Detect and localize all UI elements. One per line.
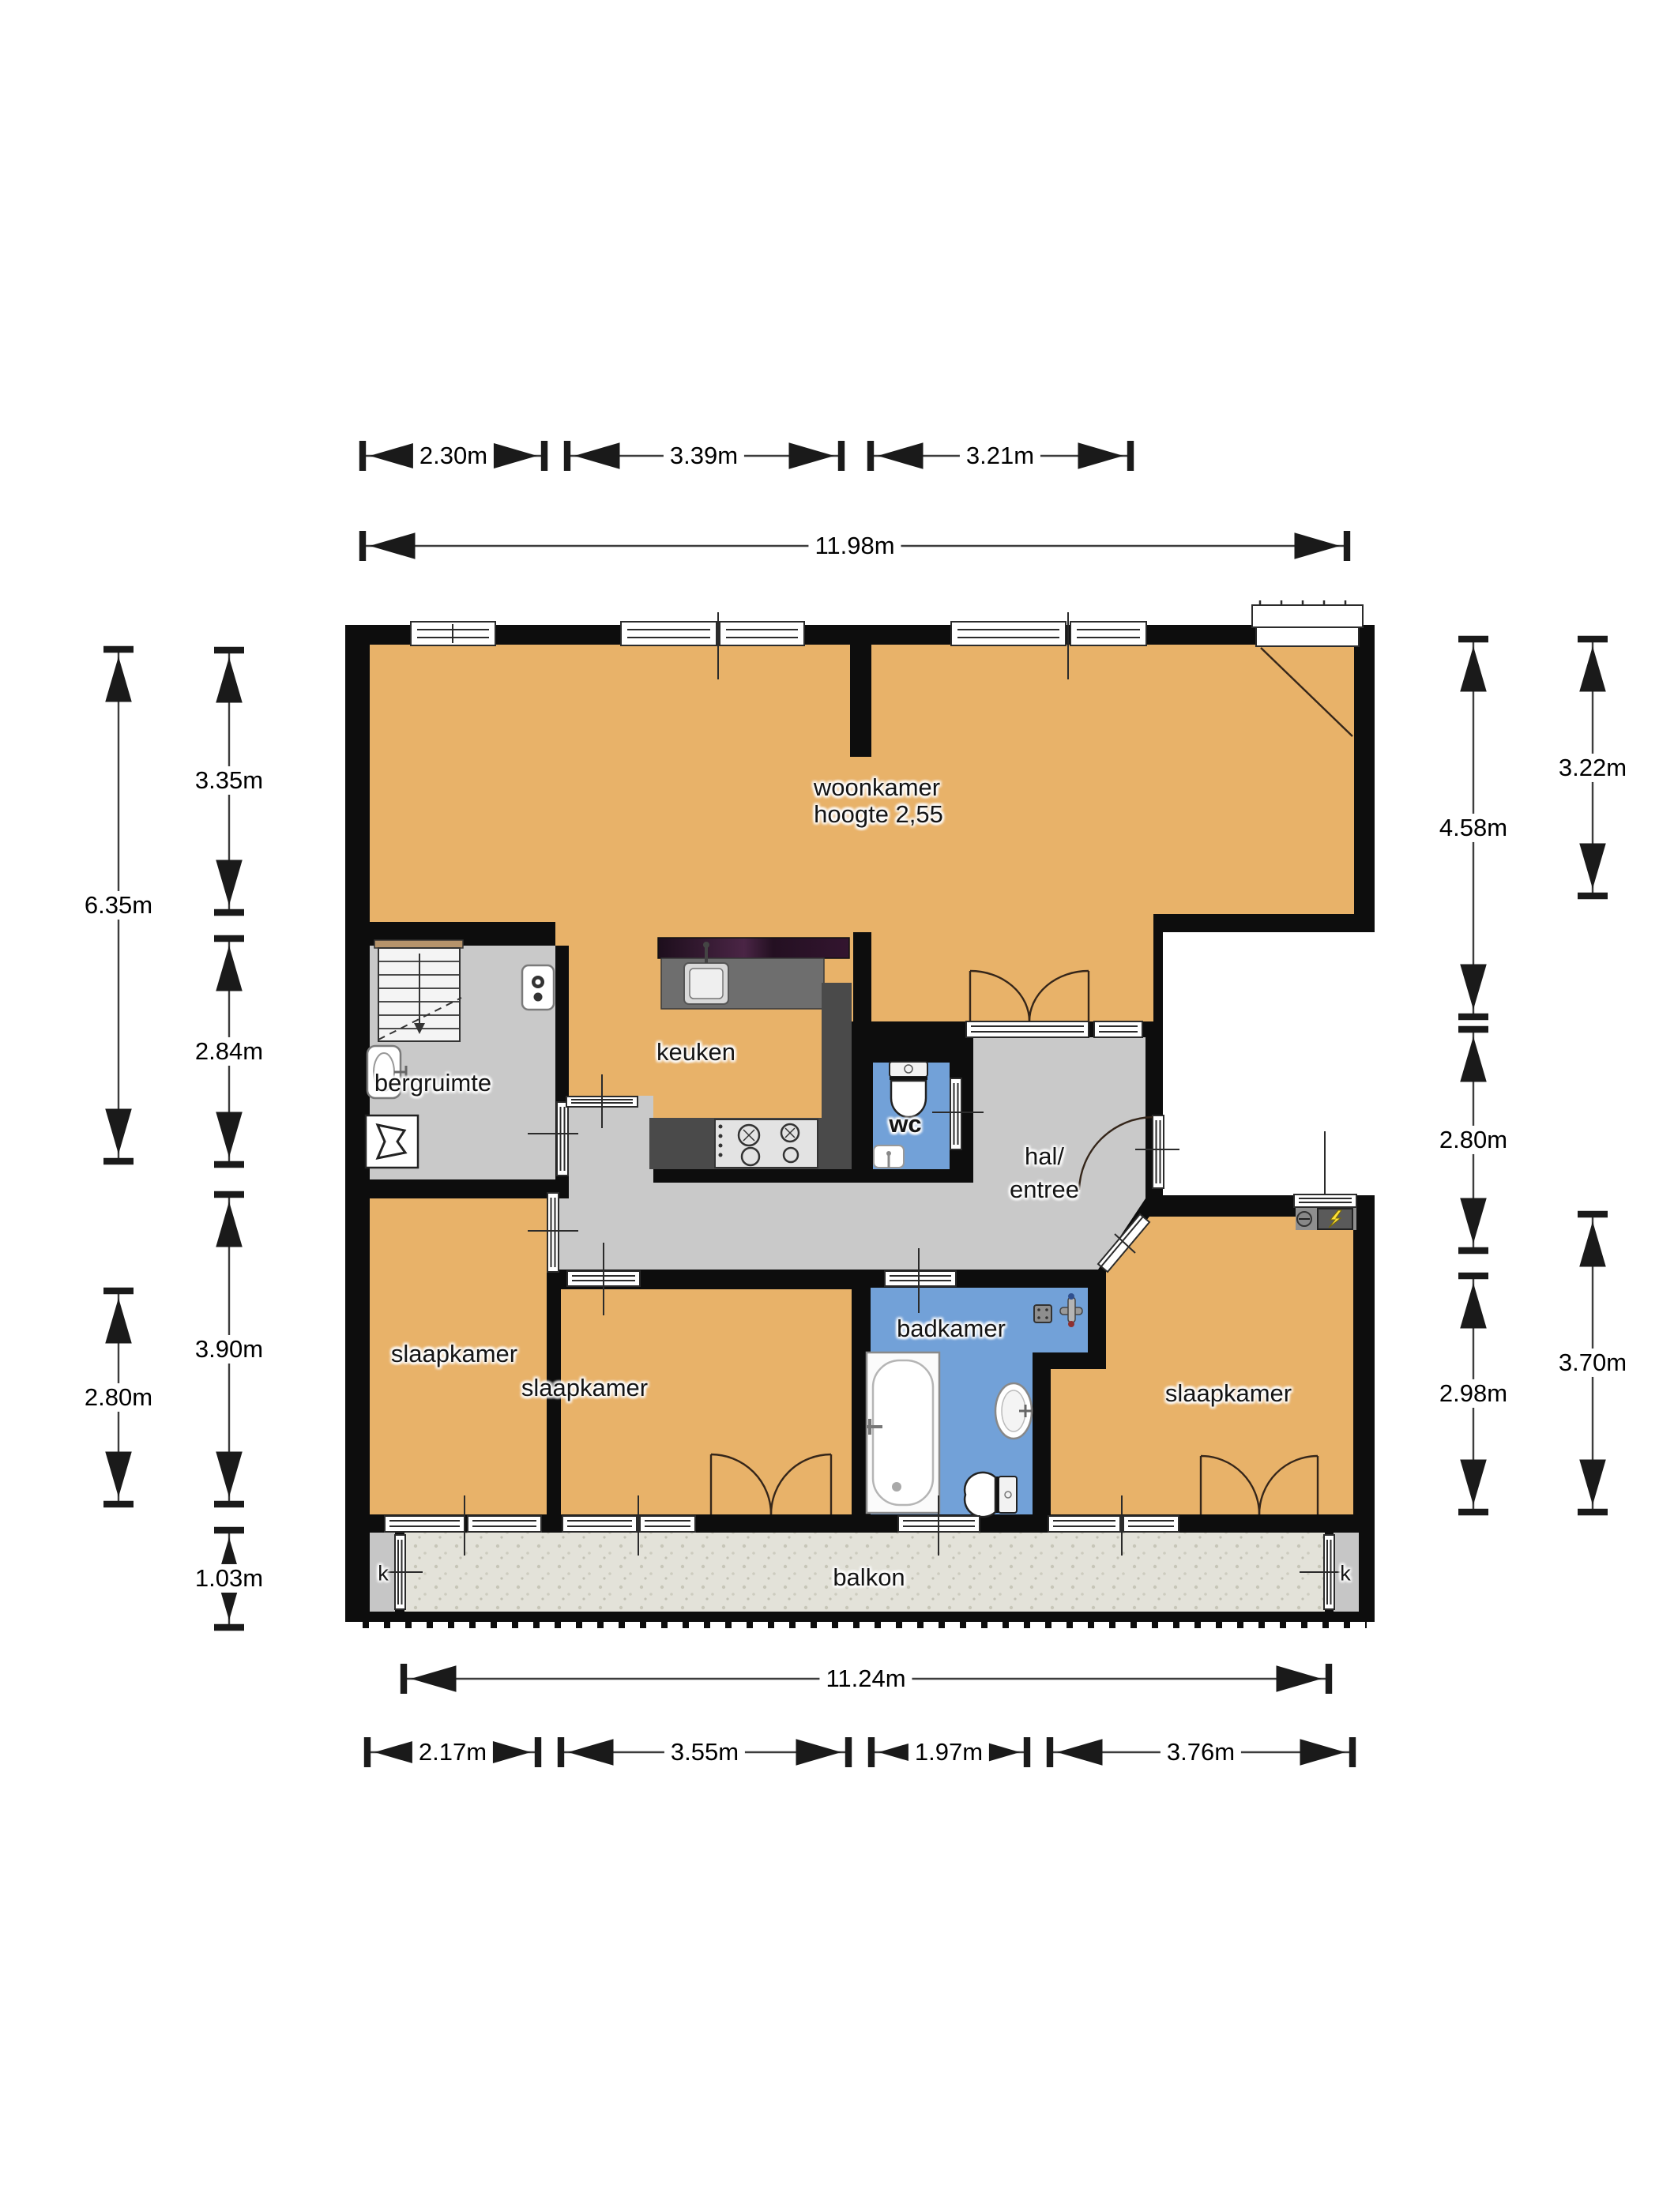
room-label-keuken: keuken bbox=[656, 1038, 735, 1066]
window bbox=[1048, 1516, 1120, 1532]
room-label-hal-line2: entree bbox=[1010, 1176, 1079, 1204]
dim-bottom-2: 3.55m bbox=[664, 1738, 745, 1766]
dim-left-inner-2: 2.84m bbox=[189, 1037, 269, 1066]
wc-basin-icon bbox=[874, 1145, 904, 1168]
window bbox=[562, 1516, 637, 1532]
room-label-bergruimte: bergruimte bbox=[374, 1069, 491, 1097]
room-label-woonkamer: woonkamer bbox=[814, 773, 940, 802]
wc-toilet-icon bbox=[890, 1062, 927, 1117]
window bbox=[1123, 1516, 1179, 1532]
window bbox=[1094, 1021, 1142, 1037]
dim-left-inner-3: 3.90m bbox=[189, 1335, 269, 1364]
dim-bottom-1: 2.17m bbox=[412, 1738, 493, 1766]
room-label-balkon: balkon bbox=[833, 1563, 905, 1592]
window bbox=[385, 1516, 465, 1532]
dim-right-outer-1: 3.22m bbox=[1552, 754, 1633, 782]
dim-top-3: 3.21m bbox=[960, 442, 1040, 470]
bathtub-icon bbox=[867, 1352, 939, 1513]
balcony-railing bbox=[362, 1618, 1367, 1628]
room-label-slaapkamer-right: slaapkamer bbox=[1165, 1379, 1292, 1408]
dim-bottom-total: 11.24m bbox=[819, 1665, 912, 1693]
dim-left-outer-1: 6.35m bbox=[78, 891, 159, 920]
dim-left-inner-4: 1.03m bbox=[189, 1564, 269, 1593]
room-label-badkamer: badkamer bbox=[897, 1315, 1006, 1343]
gas-meter-icon bbox=[1297, 1212, 1311, 1226]
boiler-icon bbox=[522, 965, 554, 1010]
dim-left-outer-2: 2.80m bbox=[78, 1383, 159, 1412]
bathroom-toilet-icon bbox=[965, 1473, 1017, 1517]
window bbox=[1294, 1194, 1356, 1207]
bathroom-basin-icon bbox=[995, 1383, 1032, 1439]
dim-top-2: 3.39m bbox=[664, 442, 744, 470]
dim-bottom-4: 3.76m bbox=[1161, 1738, 1241, 1766]
window bbox=[951, 622, 1066, 645]
utility-box-icon bbox=[366, 1115, 418, 1168]
room-label-slaapkamer-left: slaapkamer bbox=[391, 1340, 517, 1368]
room-label-slaapkamer-middle: slaapkamer bbox=[521, 1374, 648, 1402]
room-label-wc: wc bbox=[889, 1110, 921, 1138]
window bbox=[547, 1193, 559, 1272]
window bbox=[468, 1516, 541, 1532]
dim-right-inner-3: 2.98m bbox=[1433, 1379, 1514, 1408]
window bbox=[885, 1271, 956, 1286]
window bbox=[621, 622, 717, 645]
window bbox=[966, 1021, 1089, 1037]
shower-drain-icon bbox=[1034, 1305, 1051, 1322]
room-label-hal-line1: hal/ bbox=[1025, 1142, 1064, 1171]
dim-top-total: 11.98m bbox=[808, 532, 901, 560]
dim-bottom-3: 1.97m bbox=[908, 1738, 989, 1766]
dim-right-inner-1: 4.58m bbox=[1433, 814, 1514, 842]
front-door bbox=[1153, 1115, 1164, 1188]
window bbox=[640, 1516, 695, 1532]
dim-top-1: 2.30m bbox=[413, 442, 494, 470]
floor-plan-drawing bbox=[0, 0, 1659, 2212]
dim-right-inner-2: 2.80m bbox=[1433, 1126, 1514, 1154]
window bbox=[557, 1102, 568, 1176]
window bbox=[950, 1078, 961, 1149]
window bbox=[720, 622, 804, 645]
stove-icon bbox=[715, 1119, 818, 1168]
room-label-kast-right: k bbox=[1340, 1562, 1351, 1586]
room-label-woonkamer-height: hoogte 2,55 bbox=[814, 800, 943, 829]
dim-right-outer-2: 3.70m bbox=[1552, 1349, 1633, 1377]
window bbox=[411, 622, 495, 645]
room-label-kast-left: k bbox=[378, 1562, 389, 1586]
stairs-icon bbox=[374, 940, 463, 1041]
floor-plan: woonkamer hoogte 2,55 keuken bergruimte … bbox=[0, 0, 1659, 2212]
dim-left-inner-1: 3.35m bbox=[189, 766, 269, 795]
window bbox=[1070, 622, 1146, 645]
